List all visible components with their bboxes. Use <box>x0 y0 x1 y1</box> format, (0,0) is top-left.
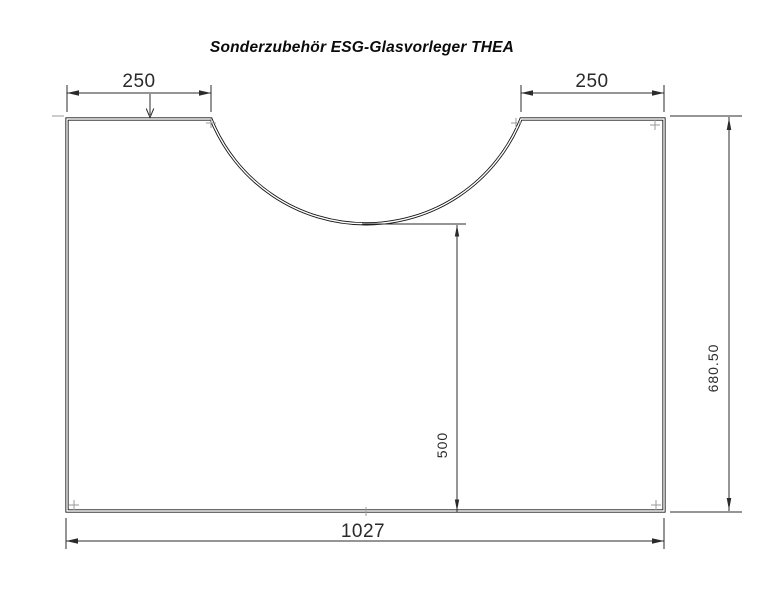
technical-drawing-page: Sonderzubehör ESG-Glasvorleger THEA 250 <box>0 0 768 611</box>
dimension-label-overall-width: 1027 <box>341 521 385 542</box>
arrow-left-icon <box>521 90 533 95</box>
dimension-top-right-250: 250 <box>521 71 664 112</box>
dimension-top-left-250: 250 <box>67 71 211 118</box>
plate-outline <box>67 119 664 511</box>
dimension-overall-width: 1027 <box>66 518 664 549</box>
arrow-right-icon <box>652 538 664 543</box>
dimension-label-overall-height: 680.50 <box>705 344 721 393</box>
dimension-label-top-left: 250 <box>122 71 155 92</box>
dimension-label-cutout-depth: 500 <box>434 432 450 458</box>
dimension-label-top-right: 250 <box>575 71 608 92</box>
dimension-lines <box>670 116 742 512</box>
dimension-overall-height: 680.50 <box>670 116 742 512</box>
arrow-left-icon <box>67 90 79 95</box>
arrow-right-icon <box>199 90 211 95</box>
arrow-up-icon <box>727 118 732 130</box>
arrow-left-icon <box>66 538 78 543</box>
plate-outline-group <box>67 119 664 511</box>
arrow-down-icon <box>727 498 732 510</box>
drawing-title: Sonderzubehör ESG-Glasvorleger THEA <box>210 39 514 56</box>
drawing-canvas: Sonderzubehör ESG-Glasvorleger THEA 250 <box>0 0 768 611</box>
arrow-right-icon <box>652 90 664 95</box>
